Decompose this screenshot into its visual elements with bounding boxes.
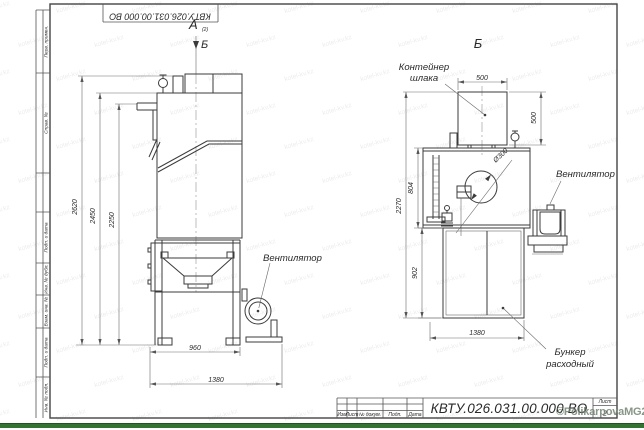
front-view-label-a: А [188, 17, 198, 32]
dim-902: 902 [412, 267, 419, 279]
drawing-sheet: kotel-kv.kzkotel-kv.kzkotel-kv.kzkotel-k… [0, 0, 644, 430]
dim-500-width: 500 [476, 75, 488, 82]
side-dimensions [403, 78, 546, 341]
bunker-label-line2: расходный [545, 359, 595, 370]
side-view-label-b: Б [474, 36, 483, 51]
stamp-inv-podl: Инв. № подл. [44, 383, 50, 413]
dim-1380-side: 1380 [469, 330, 485, 337]
dim-960: 960 [189, 345, 201, 352]
side-view [403, 78, 567, 349]
stamp-vzam-inv: Взам. инв. № [44, 297, 50, 327]
front-view [76, 36, 282, 388]
bottom-green-bar [0, 423, 644, 428]
dim-2450: 2450 [90, 208, 97, 225]
stamp-podp-data-2: Подп. и дата [44, 337, 50, 367]
dim-2250: 2250 [109, 212, 116, 229]
side-fan-label: Вентилятор [556, 169, 615, 180]
front-view-label-b: Б [201, 39, 208, 51]
fan-side [528, 205, 567, 254]
dim-500-height: 500 [531, 112, 538, 124]
dim-2620: 2620 [72, 199, 79, 216]
stamp-perv-primen: Перв. примен. [44, 26, 50, 58]
titleblock-col-data: Дата [407, 412, 421, 418]
titleblock-col-podp: Подп. [388, 412, 401, 418]
fan-front [242, 289, 282, 342]
front-view-label-a-sub: (2) [202, 27, 208, 33]
stamp-inv-dubl: Инв. № дубл. [44, 264, 50, 294]
copyright-watermark: ©PolikarpovaMG2021 [556, 406, 644, 418]
front-fan-label: Вентилятор [263, 253, 322, 264]
dim-2270: 2270 [396, 198, 403, 215]
stamp-column-labels: Перв. примен. Справ. № Подп. и дата Инв.… [44, 26, 50, 413]
titleblock-col-doc: № докум. [359, 412, 381, 418]
dim-1380-front: 1380 [208, 377, 224, 384]
stamp-podp-data-1: Подп. и дата [44, 222, 50, 252]
titleblock-sheet-label: Лист [598, 399, 612, 405]
bunker-label-line1: Бункер [554, 347, 585, 358]
container-label-line1: Контейнер [399, 62, 449, 73]
dim-diameter-300: Ø300 [492, 147, 510, 165]
dim-804: 804 [408, 182, 415, 194]
front-dimensions [76, 76, 282, 388]
titleblock-col-list: Лист [345, 412, 359, 418]
stamp-sprav-n: Справ. № [44, 112, 50, 134]
engineering-drawing: КВТУ.026.031.00.000 ВО Перв. примен. Спр… [0, 0, 644, 430]
container-label-line2: шлака [410, 73, 438, 84]
